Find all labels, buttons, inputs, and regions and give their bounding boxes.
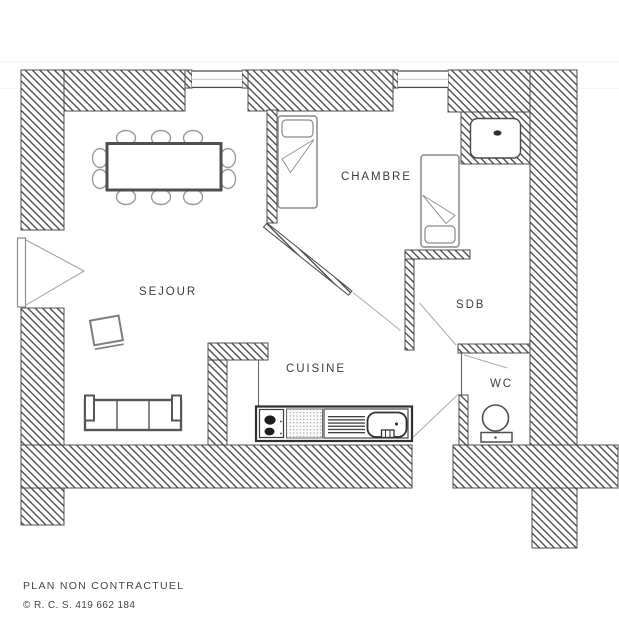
- entry-door-panel: [18, 238, 26, 307]
- faucet-spout: [395, 423, 398, 426]
- kitchen-counter: [256, 407, 412, 442]
- side-chair-seat: [90, 316, 123, 346]
- scan-streak: [0, 62, 619, 63]
- bed-pillow: [282, 120, 313, 137]
- wall-diagonal-chambre: [264, 223, 353, 295]
- floor-plan-drawing: [0, 0, 619, 640]
- stove-knob: [280, 421, 282, 423]
- room-label-cuisine: CUISINE: [286, 363, 346, 375]
- wall-stub: [242, 70, 248, 88]
- chair: [221, 149, 236, 168]
- toilet-bowl: [483, 405, 509, 431]
- sofa-body: [85, 400, 181, 430]
- wall-right: [530, 70, 577, 488]
- sofa-armrest: [172, 396, 181, 421]
- chair: [221, 170, 236, 189]
- chair: [117, 190, 136, 205]
- wall-sdb-top: [405, 250, 470, 259]
- wall-top-chambre: [248, 70, 393, 111]
- walls: [21, 70, 618, 548]
- toilet-button: [494, 436, 497, 439]
- toilet: [481, 405, 512, 442]
- wall-bottom-right-segment: [453, 445, 618, 488]
- wall-left-lower: [21, 308, 64, 525]
- wall-wc-left-lower: [459, 395, 468, 445]
- wall-cuisine-horizontal: [208, 343, 268, 360]
- chair: [184, 190, 203, 205]
- plan-disclaimer: PLAN NON CONTRACTUEL: [23, 580, 184, 592]
- wall-wc-top: [458, 344, 530, 353]
- faucet-base: [382, 430, 395, 438]
- room-label-sejour: SEJOUR: [139, 286, 197, 298]
- entry-door-swing: [26, 240, 84, 305]
- side-chair: [90, 316, 124, 350]
- counter-dotted-section: [287, 409, 323, 438]
- shower-tray: [471, 119, 521, 159]
- room-label-wc: WC: [490, 378, 513, 390]
- wall-left-upper: [21, 70, 64, 230]
- wall-stub: [393, 70, 398, 88]
- plan-registration: © R. C. S. 419 662 184: [23, 600, 135, 611]
- drainer-section: [328, 415, 365, 435]
- chair: [93, 149, 108, 168]
- bed-chambre-right: [421, 155, 459, 247]
- stove-burner: [265, 428, 275, 436]
- furniture: [85, 116, 521, 442]
- shower-basin: [471, 119, 521, 159]
- wall-chambre-partition: [267, 110, 277, 223]
- stove-burner: [264, 415, 275, 424]
- sofa-armrest: [85, 396, 94, 421]
- door-swing-sdb: [420, 303, 457, 345]
- dining-table: [107, 144, 221, 191]
- chair: [93, 170, 108, 189]
- shower-drain: [494, 130, 502, 135]
- bed-chambre-left: [278, 116, 317, 208]
- wall-sdb-left: [405, 250, 414, 350]
- sofa: [85, 396, 181, 431]
- stove-knob: [280, 433, 282, 435]
- door-swing-wc: [464, 355, 508, 368]
- thin-partitions: [259, 353, 462, 407]
- chair: [152, 190, 171, 205]
- wall-chimney-stub: [532, 488, 577, 548]
- door-swing-sdb-entry: [353, 293, 401, 331]
- window-sejour: [192, 70, 242, 88]
- wall-stub: [185, 70, 192, 88]
- floor-plan-page: SEJOUR CHAMBRE CUISINE SDB WC PLAN NON C…: [0, 0, 619, 640]
- wall-cuisine-vertical: [208, 360, 227, 445]
- door-swing-lobby: [409, 394, 459, 441]
- bed-pillow: [425, 226, 455, 243]
- room-label-chambre: CHAMBRE: [341, 171, 412, 183]
- room-label-sdb: SDB: [456, 299, 485, 311]
- window-chambre: [398, 70, 448, 88]
- wall-bottom-left-segment: [21, 445, 412, 488]
